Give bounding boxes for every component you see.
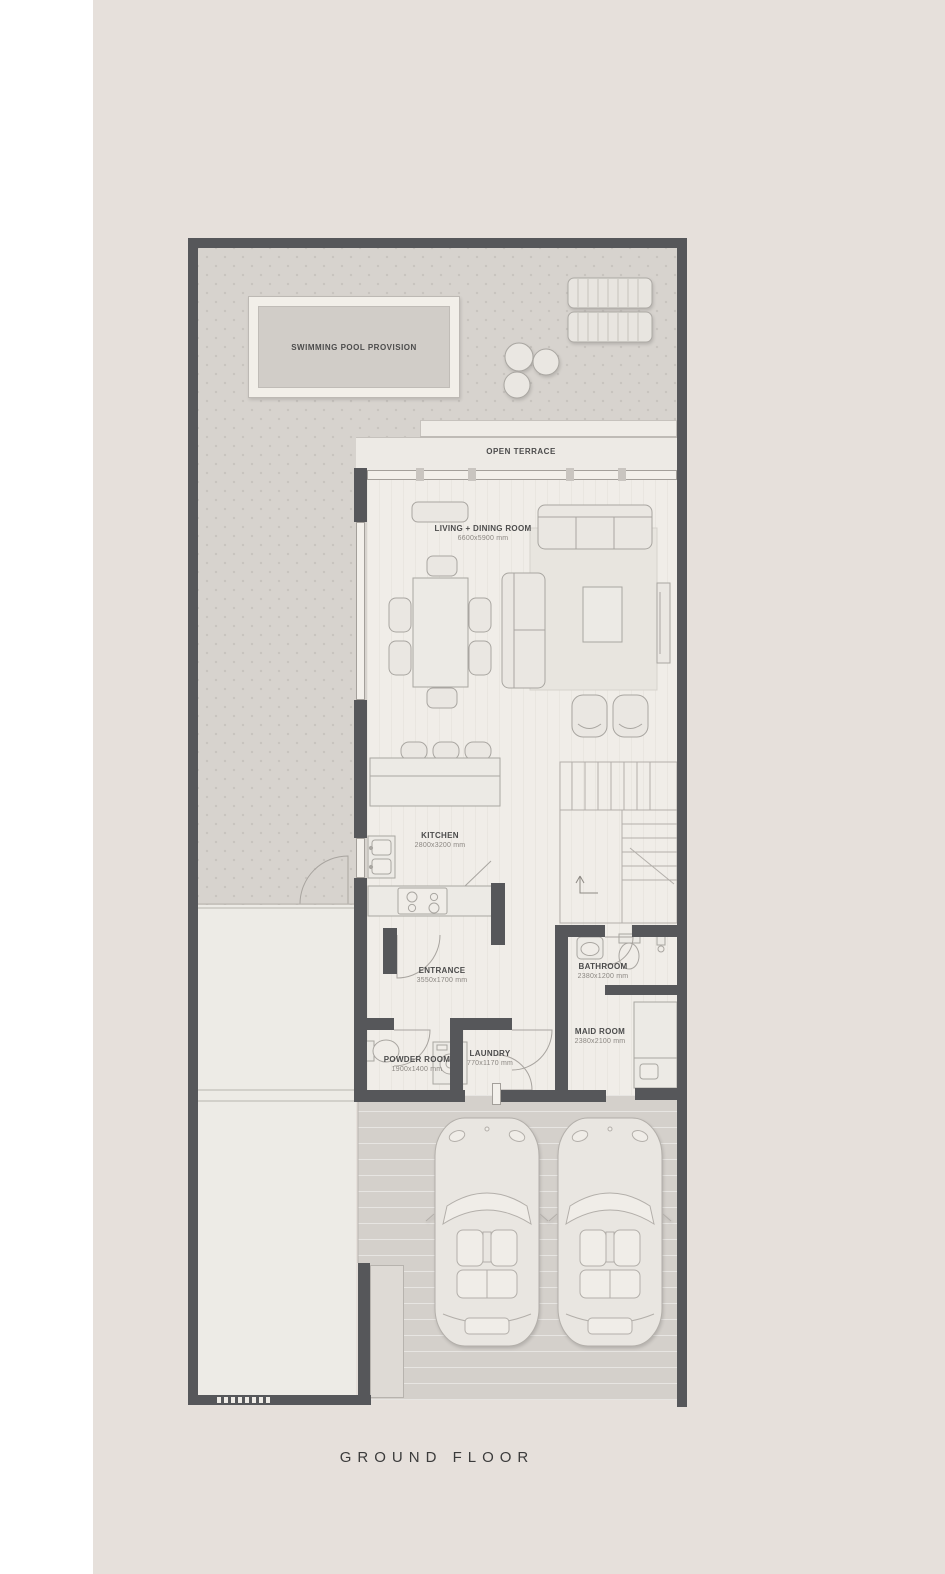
room-name: LAUNDRY — [467, 1049, 513, 1059]
window-mullion — [618, 468, 626, 481]
loveseat-sofa — [502, 573, 545, 688]
window-mullion — [566, 468, 574, 481]
tv-console — [657, 583, 670, 663]
floor-plan-page: SWIMMING POOL PROVISION — [0, 0, 945, 1574]
kitchen-label: KITCHEN 2800x3200 mm — [415, 831, 466, 851]
wall-segment — [605, 985, 677, 995]
staircase — [560, 762, 677, 923]
gate-slat — [252, 1397, 256, 1403]
room-dims: 2380x1200 mm — [578, 972, 629, 982]
furniture-layer — [188, 238, 687, 1407]
kitchen-sink-unit — [368, 836, 395, 878]
gate-slat — [217, 1397, 221, 1403]
wall-segment — [354, 878, 367, 1102]
window-left-kitchen — [356, 838, 365, 878]
room-name: MAID ROOM — [575, 1027, 626, 1037]
gate-slat — [224, 1397, 228, 1403]
car-right — [549, 1118, 671, 1346]
dining-set — [389, 556, 491, 708]
powder-room-label: POWDER ROOM 1900x1400 mm — [384, 1055, 450, 1075]
window-mullion — [468, 468, 476, 481]
sofa-large — [538, 505, 652, 549]
window-mullion — [416, 468, 424, 481]
window-left-living — [356, 522, 365, 700]
wall-segment — [354, 700, 367, 838]
console-table — [412, 502, 468, 522]
entrance-label: ENTRANCE 3550x1700 mm — [417, 966, 468, 986]
wall-segment — [188, 238, 687, 248]
wall-segment — [383, 928, 397, 974]
garden-pouf-seats — [504, 343, 559, 398]
room-name: LIVING + DINING ROOM — [435, 524, 532, 534]
wall-segment — [354, 468, 367, 522]
bathroom-label: BATHROOM 2380x1200 mm — [578, 962, 629, 982]
gate-slat — [238, 1397, 242, 1403]
bar-stools — [401, 742, 491, 760]
room-name: POWDER ROOM — [384, 1055, 450, 1065]
room-dims: 2380x2100 mm — [575, 1037, 626, 1047]
armchairs — [572, 695, 648, 737]
gate-slat — [266, 1397, 270, 1403]
wall-segment — [188, 238, 198, 1405]
room-dims: 6600x5900 mm — [435, 534, 532, 544]
wall-segment — [358, 1263, 370, 1400]
room-name: ENTRANCE — [417, 966, 468, 976]
car-left — [426, 1118, 548, 1346]
wall-segment — [188, 1395, 371, 1405]
wall-segment — [450, 1018, 512, 1030]
room-name: KITCHEN — [415, 831, 466, 841]
open-terrace-label: OPEN TERRACE — [486, 447, 556, 456]
room-name: BATHROOM — [578, 962, 629, 972]
gate-slat — [231, 1397, 235, 1403]
window-band-terrace — [367, 470, 677, 480]
wall-segment — [500, 1090, 606, 1102]
room-dims: 770x1170 mm — [467, 1059, 513, 1069]
wall-segment — [450, 1030, 463, 1090]
wall-segment — [635, 1088, 677, 1100]
wall-segment — [632, 925, 677, 937]
kitchen-island — [370, 758, 500, 806]
laundry-label: LAUNDRY 770x1170 mm — [467, 1049, 513, 1069]
maid-room-label: MAID ROOM 2380x2100 mm — [575, 1027, 626, 1047]
gate-slat — [259, 1397, 263, 1403]
coffee-table — [583, 587, 622, 642]
left-margin-strip — [0, 0, 93, 1574]
wall-segment — [555, 1018, 568, 1100]
maid-bed — [634, 1002, 677, 1088]
wall-segment — [555, 925, 568, 1027]
sun-loungers — [568, 278, 652, 342]
gate-slat — [245, 1397, 249, 1403]
wall-segment — [354, 1018, 394, 1030]
room-dims: 1900x1400 mm — [384, 1065, 450, 1075]
wall-segment — [491, 883, 505, 945]
wall-segment — [354, 1090, 465, 1102]
room-dims: 2800x3200 mm — [415, 841, 466, 851]
room-dims: 3550x1700 mm — [417, 976, 468, 986]
floor-title: GROUND FLOOR — [340, 1449, 535, 1466]
garage-door-leaf — [492, 1083, 501, 1105]
wall-segment — [677, 238, 687, 1407]
living-dining-label: LIVING + DINING ROOM 6600x5900 mm — [435, 524, 532, 544]
